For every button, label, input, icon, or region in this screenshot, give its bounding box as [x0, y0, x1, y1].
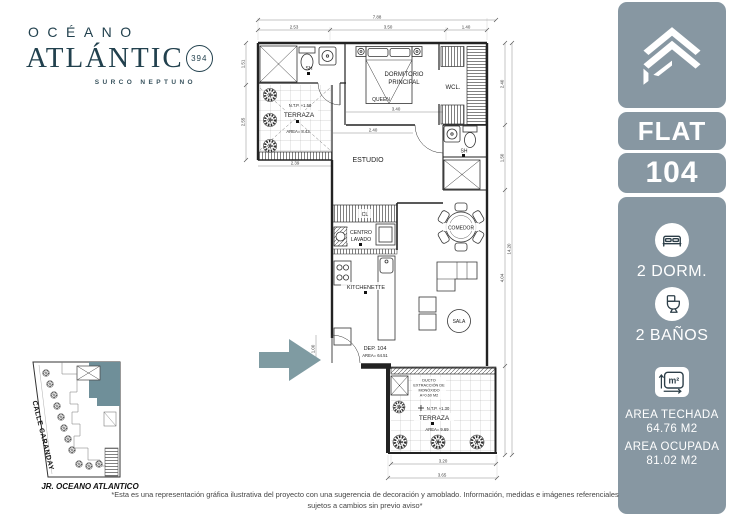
tree: [263, 88, 276, 101]
sidebar-info-block: 2 DORM. 2 BAÑOS m² AREA TECHADA 64.76 M2…: [618, 197, 726, 514]
covered-area-label: AREA TECHADA: [625, 409, 718, 421]
room-label-dormitorio-2: PRINCIPAL: [388, 80, 420, 86]
brand-name-line1: OCÉANO: [26, 24, 196, 40]
room-label-comedor: COMEDOR: [448, 226, 475, 232]
duct-label-3: MONÓXIDO: [418, 388, 439, 393]
brand-badge-394: 394: [186, 45, 213, 72]
dim-right-seg2: 1.50: [500, 153, 505, 162]
tree: [96, 461, 103, 468]
room-label-wcl: WCL.: [446, 85, 461, 91]
terrace-planter-hatch: [258, 152, 332, 160]
dim-right-seg3: 4.04: [500, 273, 505, 282]
kitchen-cabinet: [334, 328, 351, 345]
room-label-bath-right: SH: [461, 149, 468, 155]
annotation-area-upper: AREA= 8.43: [286, 129, 310, 134]
bed-type-label: QUEEN: [372, 97, 390, 103]
tree: [51, 392, 58, 399]
bathrooms-label: 2 BAÑOS: [636, 327, 709, 345]
tree: [76, 461, 83, 468]
room-label-sala: SALA: [453, 319, 466, 325]
disclaimer-text: *Esta es una representación gráfica ilus…: [105, 490, 625, 511]
flyer-page: 7.88 2.53 3.50 1.40 1.51 2.55 2.39 3.40 …: [0, 0, 730, 516]
room-label-terraza-upper: TERRAZA: [284, 112, 315, 119]
square-meters-icon: m²: [655, 367, 689, 397]
dim-top-seg2: 3.50: [384, 25, 393, 30]
brand-badge-number: 394: [191, 54, 207, 63]
tree: [393, 435, 407, 449]
tree: [43, 370, 50, 377]
sink-right: [444, 126, 460, 142]
kitchen-divider-hatch: [333, 249, 397, 254]
wardrobe-hatch: [467, 47, 486, 125]
duct-label-1: DUCTO: [422, 379, 435, 383]
tree: [393, 401, 405, 413]
annotation-area-lower: AREA= 9.69: [425, 427, 449, 432]
dim-entry-height: 1.00: [311, 344, 316, 353]
toilet-right: [463, 126, 477, 148]
room-label-laundry-1: CENTRO: [350, 230, 372, 236]
brand-name-line2: ATLÁNTIC 394: [26, 42, 196, 75]
shower-top: [260, 46, 297, 82]
room-label-cl: CL: [362, 212, 369, 218]
duct-label-4: A=0.60 M2: [420, 394, 438, 398]
dim-bottom-total: 3.65: [438, 473, 447, 478]
dim-bottom-seg: 3.20: [439, 459, 448, 464]
tv-stand: [419, 297, 436, 330]
tree: [61, 425, 68, 432]
tree: [65, 436, 72, 443]
annotation-ntp-upper: N.T.P. +1.50: [289, 103, 312, 108]
washing-machine: [334, 227, 347, 246]
brand-logo: OCÉANO ATLÁNTIC 394 SURCO NEPTUNO: [26, 24, 196, 86]
occupied-area-value: 81.02 M2: [646, 455, 697, 467]
room-label-kitchenette: KITCHENETTE: [347, 285, 386, 291]
dim-top-seg1: 2.53: [290, 25, 299, 30]
dim-top-seg3: 1.40: [462, 25, 471, 30]
annotation-ntp-lower: N.T.P. +1.30: [427, 406, 450, 411]
brand-name-text: ATLÁNTIC: [26, 42, 184, 75]
brand-subtitle: SURCO NEPTUNO: [26, 79, 196, 86]
stove: [334, 261, 351, 285]
tree: [69, 447, 76, 454]
room-label-dormitorio-1: DORMITORIO: [385, 72, 424, 78]
brand-chevron-icon: [641, 24, 703, 86]
room-label-bath-top: SH: [306, 66, 313, 72]
tree: [470, 435, 484, 449]
closet-hatch-bottom: [441, 105, 464, 124]
tree: [263, 113, 276, 126]
tree: [86, 463, 93, 470]
dim-left-seg1: 1.51: [241, 59, 246, 68]
site-stairs: [105, 448, 118, 476]
sidebar-flat-block: FLAT: [618, 112, 726, 150]
dim-below-terrace: 2.39: [291, 161, 300, 166]
tree: [263, 139, 276, 152]
tree: [47, 381, 54, 388]
laundry-sink: [376, 224, 395, 245]
room-label-terraza-lower: TERRAZA: [419, 415, 450, 422]
room-label-laundry-2: LAVADO: [351, 237, 371, 243]
sidebar-brand-block: [618, 2, 726, 108]
site-map: CALLE CARANDAY JR. OCEANO ATLANTICO: [30, 362, 139, 491]
kitchen-island: [378, 256, 395, 340]
tree: [58, 414, 65, 421]
tree: [431, 435, 445, 449]
covered-area-value: 64.76 M2: [646, 423, 697, 435]
shower-right: [444, 160, 480, 189]
room-label-estudio: ESTUDIO: [352, 157, 384, 164]
unit-title-label: DEP. 104: [364, 346, 387, 352]
occupied-area-label: AREA OCUPADA: [625, 441, 720, 453]
dim-estudio-width: 2.40: [369, 128, 378, 133]
bedrooms-label: 2 DORM.: [637, 263, 707, 281]
bed-icon: [655, 223, 689, 257]
dim-right-seg1: 2.40: [500, 79, 505, 88]
dim-bed-width: 3.40: [392, 107, 401, 112]
flat-label: FLAT: [638, 116, 707, 147]
dim-left-seg2: 2.55: [241, 117, 246, 126]
sofa: [437, 262, 477, 291]
unit-area-label: AREA= 64.51: [362, 353, 388, 358]
closet-hatch-top: [441, 47, 464, 67]
toilet-icon: [655, 287, 689, 321]
site-hatch-block: [77, 366, 100, 380]
monoxide-duct: [391, 376, 408, 395]
sqm-symbol: m²: [668, 375, 679, 385]
tree: [54, 403, 61, 410]
dim-top-total: 7.88: [373, 15, 382, 20]
unit-number: 104: [645, 156, 698, 190]
duct-label-2: EXTRACCIÓN DE: [413, 383, 445, 388]
sink-top: [319, 47, 336, 65]
sidebar-unit-block: 104: [618, 153, 726, 193]
dim-right-total: 14.20: [507, 243, 512, 255]
